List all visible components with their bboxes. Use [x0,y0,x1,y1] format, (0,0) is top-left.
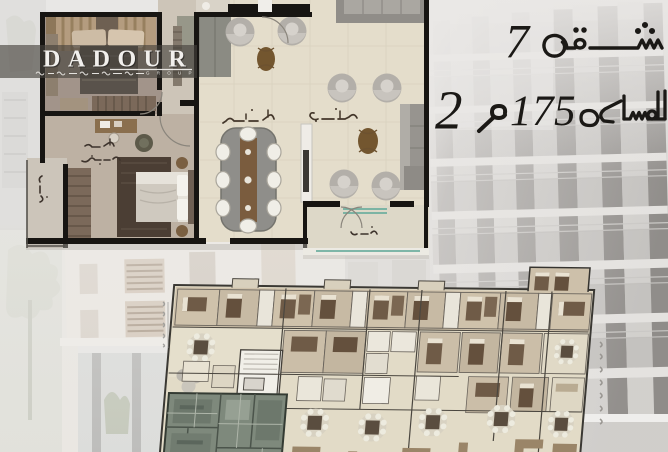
svg-text:G R O U P: G R O U P [146,71,195,76]
svg-text:2: 2 [435,80,463,141]
svg-text:7: 7 [505,16,531,69]
svg-text:DADOUR: DADOUR [43,47,193,73]
svg-text:175: 175 [510,88,576,135]
